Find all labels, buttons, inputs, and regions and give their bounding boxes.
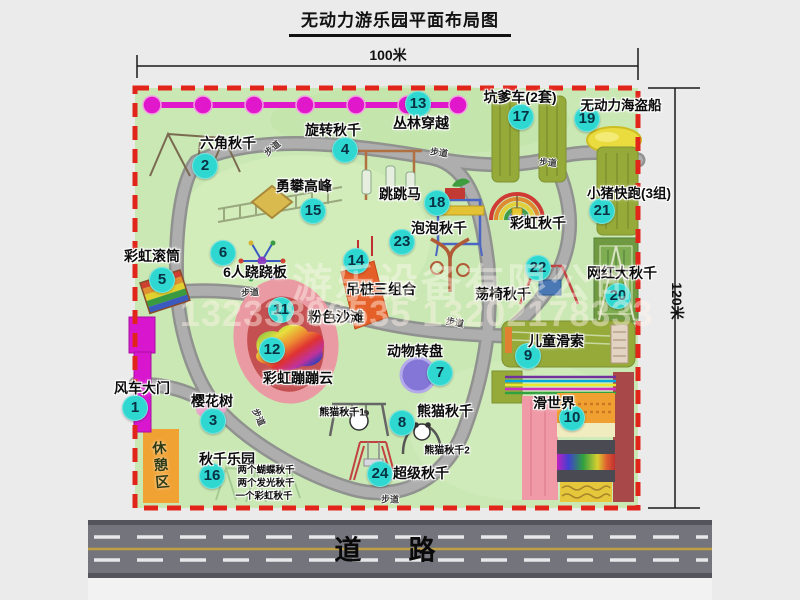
road-label: 道 路 [335, 529, 446, 568]
page-title-text: 无动力游乐园平面布局图 [289, 6, 511, 37]
screenshot-stage: 无动力游乐园平面布局图 100米 120米 休憩区 道 路 游乐设备有限公司 1… [0, 0, 800, 600]
piggy-run-structure [597, 147, 638, 235]
watermark-phone: 13233806535 13202178333 [180, 293, 653, 335]
height-dimension-label: 120米 [667, 282, 687, 319]
width-dimension-label: 100米 [369, 45, 406, 65]
page-title: 无动力游乐园平面布局图 [0, 6, 800, 37]
animal-turntable-structure [401, 358, 435, 392]
